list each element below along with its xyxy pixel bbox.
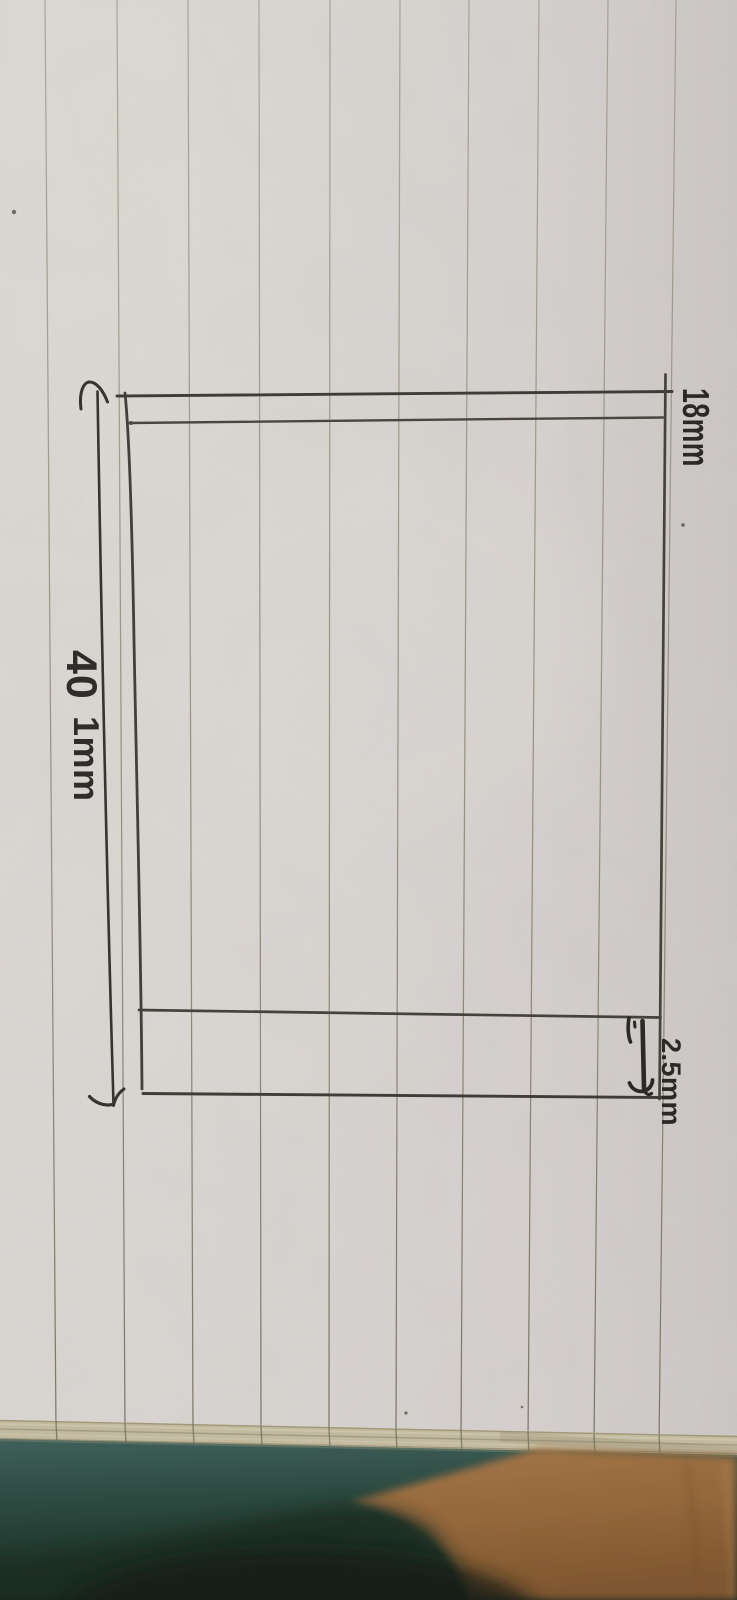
svg-text:2.5mm: 2.5mm	[656, 1038, 686, 1126]
svg-text:18mm: 18mm	[674, 388, 716, 467]
svg-text:1mm: 1mm	[66, 716, 107, 802]
svg-text:40: 40	[57, 650, 105, 700]
